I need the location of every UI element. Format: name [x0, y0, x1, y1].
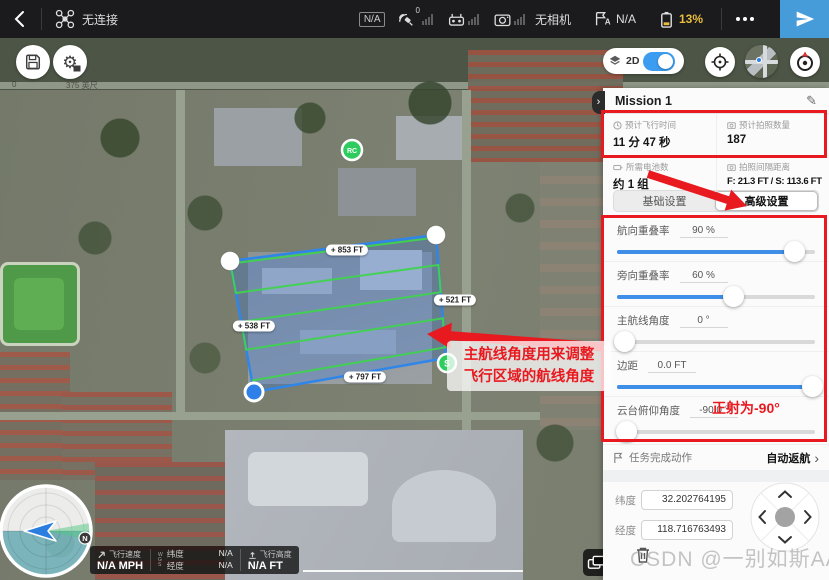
save-icon	[24, 53, 42, 71]
setting-route-angle: 主航线角度0 °	[603, 307, 829, 352]
mission-title: Mission 1	[615, 94, 672, 108]
edge-length-label-left: + 538 FT	[233, 321, 275, 332]
topbar-divider-right	[721, 8, 722, 30]
setting-margin: 边距0.0 FT	[603, 352, 829, 397]
stat-photo-count: 预计拍照数量 187	[716, 114, 828, 156]
vertex-handle-bottomleft-selected[interactable]	[245, 383, 263, 401]
setting-value-input[interactable]: 0.0 FT	[648, 359, 696, 373]
setting-value-input[interactable]: 0 °	[680, 314, 728, 328]
annotation-gimbal-note: 正射为-90°	[712, 398, 780, 418]
stat-label: 拍照间隔距离	[739, 161, 790, 173]
watermark: CSDN @一别如斯AA	[630, 543, 829, 573]
speed-value: N/A MPH	[97, 560, 143, 572]
connection-status: 无连接	[82, 11, 118, 28]
slider-thumb[interactable]	[614, 331, 635, 352]
map-scale-bar	[303, 570, 523, 572]
latitude-label: 纬度	[615, 493, 641, 508]
compass-reset-button[interactable]	[790, 47, 820, 77]
photo-icon	[727, 121, 736, 130]
aircraft-icon	[55, 9, 75, 29]
nudge-center-handle	[775, 507, 795, 527]
rc-location-marker[interactable]: RC	[342, 140, 362, 160]
takeoff-plane-icon	[795, 9, 815, 29]
edge-length-label-bottom: + 797 FT	[344, 372, 386, 383]
camera-status: 无相机	[535, 11, 571, 28]
app-screen: 0 375 英尺 S RC + 853 FT + 521 FT + 538 FT…	[0, 0, 829, 580]
altitude-section: 飞行高度 N/A FT	[241, 546, 299, 574]
locate-me-button[interactable]	[705, 47, 735, 77]
stat-label: 所需电池数	[626, 161, 669, 173]
map-scale-distance: 375 英尺	[66, 80, 98, 91]
setting-value-input[interactable]: 60 %	[680, 269, 728, 283]
map-scale-zero: 0	[12, 80, 16, 89]
map-mode-toggle[interactable]	[643, 52, 675, 71]
edge-length-label-right: + 521 FT	[434, 295, 476, 306]
map-mode-pill: 2D	[603, 48, 684, 74]
telemetry-lat-label: 纬度	[167, 548, 184, 560]
setting-label: 旁向重叠率	[617, 268, 670, 283]
finish-flag-icon	[613, 452, 624, 464]
minimap-button[interactable]	[745, 45, 778, 78]
telemetry-lng-value: N/A	[219, 560, 233, 572]
chevron-right-icon: ›	[597, 97, 601, 108]
finish-action-label: 任务完成动作	[629, 450, 692, 465]
camera-icon	[493, 10, 512, 28]
setting-side-overlap: 旁向重叠率60 %	[603, 262, 829, 307]
satellite-signal-bars	[422, 14, 433, 25]
layers-icon	[608, 54, 622, 68]
svg-text:RC: RC	[347, 148, 357, 155]
svg-text:A: A	[605, 17, 611, 26]
stat-label: 预计拍照数量	[739, 119, 790, 131]
compass-icon	[793, 50, 817, 74]
setting-label: 航向重叠率	[617, 223, 670, 238]
battery-small-icon	[613, 163, 623, 172]
crosshair-icon	[710, 52, 730, 72]
edit-mission-button[interactable]: ✎	[806, 93, 817, 109]
setting-slider[interactable]	[617, 340, 815, 344]
setting-value-input[interactable]: 90 %	[680, 224, 728, 238]
speed-label: 飞行速度	[109, 549, 141, 560]
telemetry-bar: 飞行速度 N/A MPH WGS 纬度N/A 经度N/A 飞行高度 N/A FT	[90, 546, 299, 574]
route-note-line1: 主航线角度用来调整	[453, 344, 605, 366]
altitude-icon	[248, 550, 257, 559]
panel-collapse-tab[interactable]: ›	[592, 91, 605, 114]
back-button[interactable]	[9, 8, 31, 30]
slider-thumb[interactable]	[784, 241, 805, 262]
chevron-right-icon: ›	[814, 451, 819, 465]
satellite-count: 0	[415, 6, 419, 15]
route-note-line2: 飞行区域的航线角度	[453, 366, 605, 388]
latitude-input[interactable]: 32.202764195	[641, 490, 733, 510]
setting-front-overlap: 航向重叠率90 %	[603, 217, 829, 262]
remote-controller-icon	[447, 10, 466, 28]
rc-signal-bars	[468, 14, 479, 25]
satellite-icon	[397, 10, 415, 28]
edge-length-label-top: + 853 FT	[326, 245, 368, 256]
finish-action-row[interactable]: 任务完成动作 自动返航 ›	[603, 444, 829, 470]
vertex-handle-topleft[interactable]	[221, 252, 240, 271]
settings-tabs: 基础设置 高级设置	[613, 190, 819, 212]
aircraft-status-badge: N/A	[359, 12, 386, 27]
stat-value: F: 21.3 FT / S: 113.6 FT	[727, 176, 818, 187]
battery-icon	[658, 10, 675, 29]
minimap-road-v	[763, 45, 767, 78]
stat-value: 11 分 47 秒	[613, 134, 705, 150]
altitude-label: 飞行高度	[260, 549, 292, 560]
setting-slider[interactable]	[617, 430, 815, 434]
map-mode-label: 2D	[626, 55, 639, 67]
longitude-label: 经度	[615, 523, 641, 538]
topbar-divider	[41, 8, 42, 30]
slider-thumb[interactable]	[616, 421, 637, 442]
stat-label: 预计飞行时间	[625, 119, 676, 131]
more-menu-button[interactable]	[736, 17, 754, 21]
gear-badge-icon	[73, 65, 81, 72]
setting-label: 边距	[617, 358, 638, 373]
setting-slider[interactable]	[617, 250, 815, 254]
setting-label: 云台俯仰角度	[617, 403, 680, 418]
wgs-label: WGS	[158, 553, 163, 568]
annotation-route-note: 主航线角度用来调整 飞行区域的航线角度	[447, 341, 611, 391]
slider-thumb[interactable]	[723, 286, 744, 307]
top-status-bar: 无连接 N/A 0 无相机 A N/A 13%	[0, 0, 829, 38]
finish-action-value: 自动返航	[766, 450, 810, 466]
svg-text:N: N	[82, 534, 87, 543]
compass-north-badge: N	[79, 532, 91, 544]
clock-icon	[613, 121, 622, 130]
telemetry-lat-value: N/A	[219, 548, 233, 560]
stat-flight-time: 预计飞行时间 11 分 47 秒	[603, 114, 715, 156]
longitude-input[interactable]: 118.716763493	[641, 520, 733, 540]
altitude-value: N/A FT	[248, 560, 292, 572]
takeoff-button[interactable]	[780, 0, 829, 38]
mission-panel: Mission 1 ✎ 预计飞行时间 11 分 47 秒 预计拍照数量 187 …	[603, 88, 829, 580]
setting-label: 主航线角度	[617, 313, 670, 328]
save-mission-button[interactable]	[16, 45, 50, 79]
tab-basic-settings[interactable]: 基础设置	[614, 191, 715, 211]
stat-value: 187	[727, 134, 818, 146]
speed-section: 飞行速度 N/A MPH	[90, 546, 150, 574]
flight-mode-icon: A	[593, 10, 611, 28]
gps-section: WGS 纬度N/A 经度N/A	[151, 546, 240, 574]
toggle-knob	[658, 54, 673, 69]
attitude-compass: N	[0, 483, 94, 579]
camera-signal-bars	[514, 14, 525, 25]
vertex-handle-topright[interactable]	[427, 226, 446, 245]
slider-thumb[interactable]	[802, 376, 823, 397]
battery-percent: 13%	[679, 12, 703, 26]
tab-advanced-settings[interactable]: 高级设置	[715, 191, 818, 211]
mission-settings-button[interactable]: ⚙	[53, 45, 87, 79]
telemetry-lng-label: 经度	[167, 560, 184, 572]
minimap-position-dot	[756, 57, 762, 63]
setting-slider[interactable]	[617, 385, 815, 389]
flight-mode-value: N/A	[616, 12, 636, 26]
setting-slider[interactable]	[617, 295, 815, 299]
speed-arrow-icon	[97, 550, 106, 559]
interval-icon	[727, 163, 736, 172]
